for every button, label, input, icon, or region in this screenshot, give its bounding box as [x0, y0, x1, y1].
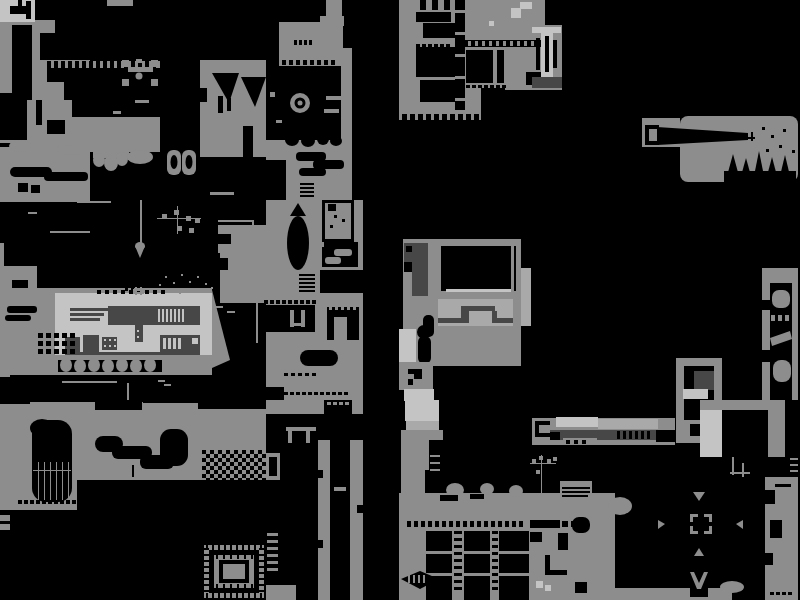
- region-map-canvas: [0, 0, 800, 600]
- map-screen: [0, 0, 800, 600]
